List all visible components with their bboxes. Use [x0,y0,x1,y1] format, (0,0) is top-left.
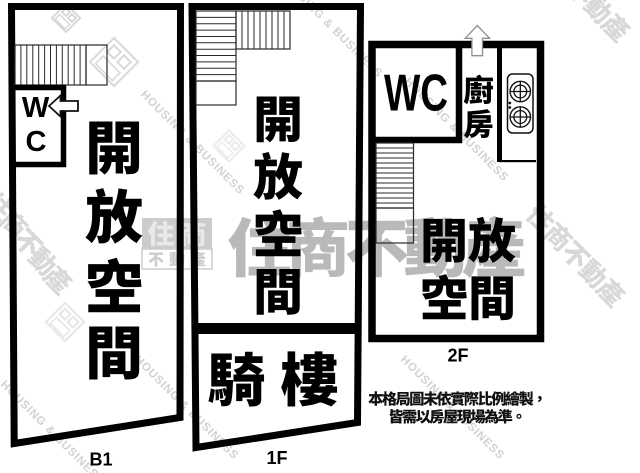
svg-text:W: W [22,92,50,124]
svg-text:1F: 1F [266,448,287,468]
svg-text:C: C [26,126,47,158]
svg-text:2F: 2F [447,346,468,366]
svg-text:WC: WC [384,64,448,122]
svg-text:B1: B1 [89,450,112,470]
